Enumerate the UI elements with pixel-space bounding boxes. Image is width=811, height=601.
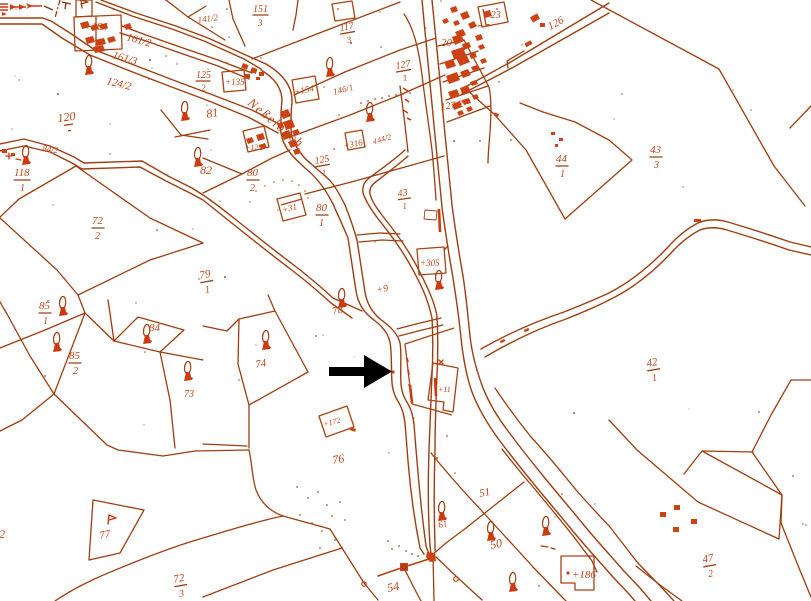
svg-text:1: 1 xyxy=(560,169,565,180)
svg-text:1: 1 xyxy=(43,316,48,327)
svg-text:+9: +9 xyxy=(376,283,389,296)
svg-text:+125: +125 xyxy=(245,143,262,152)
svg-text:3: 3 xyxy=(653,160,659,171)
svg-text:85: 85 xyxy=(39,300,51,312)
svg-text:73: 73 xyxy=(184,389,194,400)
svg-text:76: 76 xyxy=(331,451,345,467)
svg-text:44: 44 xyxy=(556,153,568,165)
svg-text:+184: +184 xyxy=(84,21,108,33)
svg-text:2: 2 xyxy=(73,366,78,377)
svg-text:72: 72 xyxy=(92,215,104,227)
svg-text:80: 80 xyxy=(316,202,328,214)
svg-text:84: 84 xyxy=(149,322,161,334)
svg-text:2: 2 xyxy=(95,231,100,242)
svg-text:2: 2 xyxy=(201,83,206,93)
svg-text:3: 3 xyxy=(257,18,263,28)
svg-text:+305: +305 xyxy=(420,258,440,268)
svg-text:72: 72 xyxy=(0,527,5,541)
svg-text:82: 82 xyxy=(200,163,212,177)
svg-text:+11: +11 xyxy=(438,385,451,394)
svg-text:43: 43 xyxy=(650,144,662,156)
svg-text:2: 2 xyxy=(250,183,255,194)
svg-text:20: 20 xyxy=(441,37,453,49)
svg-text:85: 85 xyxy=(69,350,81,362)
svg-text:81: 81 xyxy=(205,105,219,121)
svg-text:1: 1 xyxy=(319,218,324,229)
svg-text:80: 80 xyxy=(247,167,259,179)
svg-text:125: 125 xyxy=(196,70,211,81)
svg-text:118: 118 xyxy=(14,167,30,179)
svg-text:+23: +23 xyxy=(484,10,501,21)
svg-text:120: 120 xyxy=(57,109,77,125)
svg-text:151: 151 xyxy=(253,4,268,15)
svg-text:+186: +186 xyxy=(572,569,596,581)
svg-text:1: 1 xyxy=(20,183,25,194)
svg-text:43: 43 xyxy=(397,187,408,199)
svg-text:+135: +135 xyxy=(225,77,245,87)
